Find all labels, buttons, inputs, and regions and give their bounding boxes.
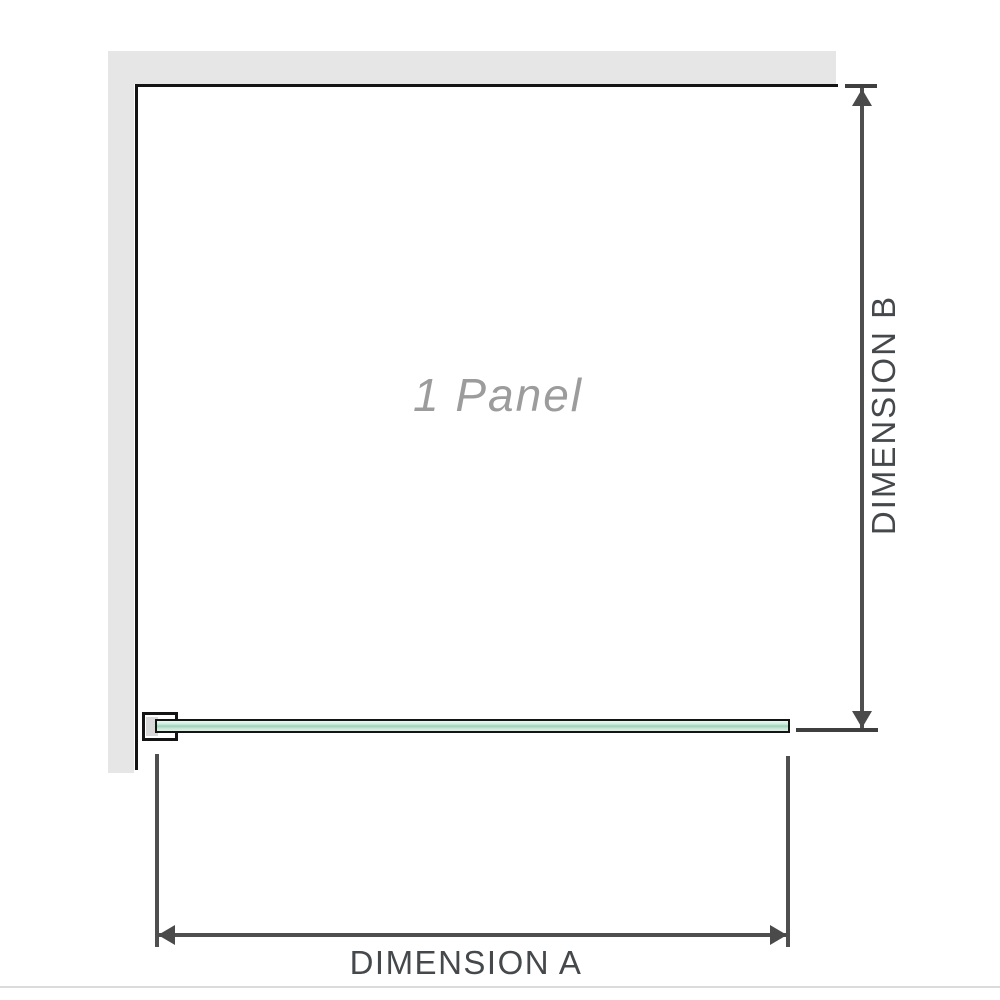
dimension-b-top-tick [845,84,877,88]
dimension-b-label: DIMENSION B [865,295,903,535]
arrowhead-right-icon [770,925,787,945]
glass-panel-top-view [155,719,790,733]
panel-left-edge [135,84,138,770]
dimension-b-arrow-line [860,88,864,729]
dimension-b-bottom-tick [796,728,878,732]
arrowhead-left-icon [158,925,175,945]
dimension-a-right-extension-line [786,756,790,947]
dimension-a-label: DIMENSION A [350,944,583,982]
wall-left-band [108,51,134,773]
dimension-a-arrow-line [159,933,786,937]
dimension-a-left-extension-line [155,754,159,947]
wall-top-band [108,51,836,84]
bottom-separator-line [0,986,1000,988]
panel-top-edge [135,84,838,87]
arrowhead-up-icon [852,89,872,106]
panel-count-label: 1 Panel [413,368,583,422]
arrowhead-down-icon [852,711,872,728]
dimension-diagram-canvas: 1 Panel DIMENSION B DIMENSION A [0,0,1000,1000]
